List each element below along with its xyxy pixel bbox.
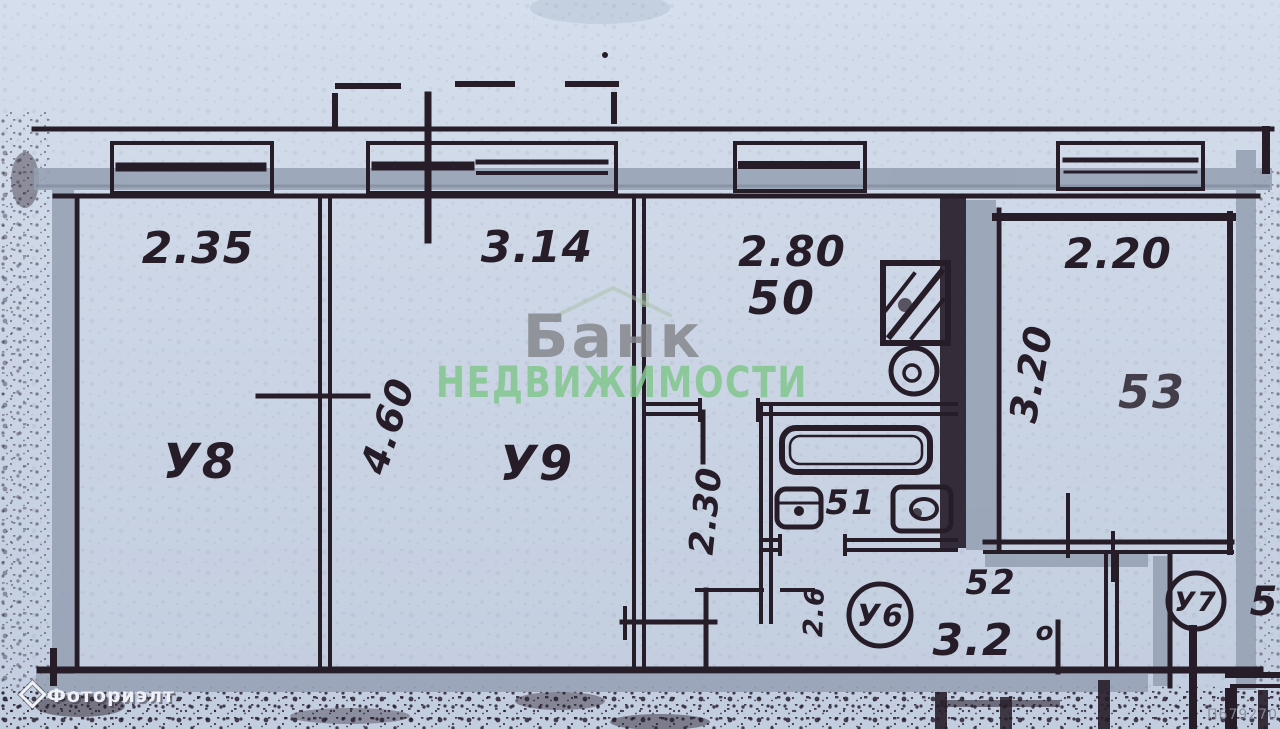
floorplan-scan: 2.35 3.14 У8 У9 4.60 2.80 50 2.20 3.20 5… [0, 0, 1280, 729]
label-hall-number: 52 [965, 563, 1016, 603]
dim-u9-width: 3.14 [481, 222, 594, 273]
label-room53-number: 53 [1118, 365, 1186, 419]
label-kitchen-number: 50 [748, 271, 816, 325]
label-room-u9: У9 [500, 436, 574, 492]
label-bath-number: 51 [825, 483, 876, 523]
photo-agency-name: Фоториэлт [47, 685, 175, 707]
label-unit-u6: У6 [857, 599, 905, 634]
label-room-u8: У8 [163, 434, 237, 490]
dim-hall-side: 2.6 [798, 586, 831, 638]
dim-hall-width: 3.2 [933, 615, 1014, 666]
reference-code: П679270 [1207, 707, 1278, 723]
dim-u8-width: 2.35 [142, 223, 255, 274]
brand-watermark-line2: НЕДВИЖИМОСТИ [436, 358, 808, 408]
dim-room53-width: 2.20 [1064, 229, 1172, 278]
label-unit-u7: У7 [1174, 587, 1218, 618]
dim-hall-width-suffix: о [1036, 617, 1055, 647]
scanned-floorplan-page: 2.35 3.14 У8 У9 4.60 2.80 50 2.20 3.20 5… [0, 0, 1280, 729]
dim-kitchen-width: 2.80 [738, 227, 846, 276]
label-neighbor-partial: 5 [1250, 579, 1279, 625]
